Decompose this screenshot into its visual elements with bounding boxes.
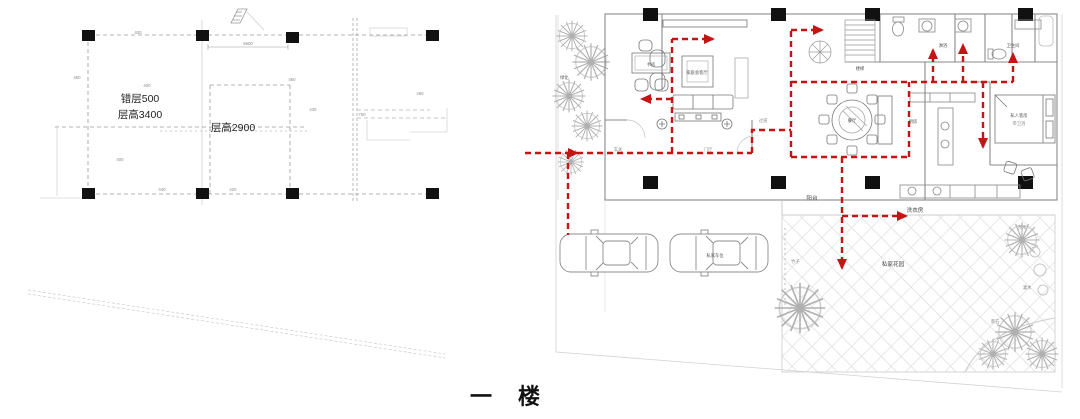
floor-height2-label: 层高2900 (211, 121, 256, 134)
dining-label: 餐厅 (848, 117, 857, 124)
dining-furniture: 餐厅 厨房 (819, 84, 917, 155)
dim-text: 260 (416, 91, 424, 96)
north-arrow-icon (231, 9, 264, 30)
floor-title: 一 楼 (400, 379, 620, 411)
foyer-label: 玄关 (614, 146, 623, 153)
columns (643, 8, 1033, 189)
living-furniture: 家庭会客厅 (650, 20, 748, 129)
floor-height-label: 层高3400 (118, 108, 163, 121)
greenery-label: 绿化 (560, 74, 569, 81)
dim-text: 750 (358, 112, 366, 117)
side-garden: 绿化 (553, 15, 610, 200)
split-level-label: 错层500 (121, 92, 160, 105)
dim-text: 460 (288, 77, 296, 82)
stairs-and-plant: 楼梯 (809, 20, 875, 72)
site-boundary (28, 290, 445, 358)
parking-label: 私家车位 (706, 252, 724, 259)
laundry-label: 洗衣房 (907, 206, 924, 214)
faint-structures (40, 28, 447, 198)
dim-text: 440 (158, 187, 166, 192)
shrub-label: 灌木 (1023, 284, 1032, 291)
furnished-plan: 绿化 (515, 0, 1080, 419)
floor-plan-sheet: 错层500 层高3400 层高2900 400 5600 450 400 460… (0, 0, 1080, 419)
dim-text: 430 (309, 107, 317, 112)
bedroom-furniture: 私人客房 带卫浴 (995, 95, 1055, 181)
shower-label: 淋浴 (939, 42, 948, 49)
corridor-label: 过道 (759, 117, 768, 124)
grid-lines (55, 18, 447, 205)
parking: 私家车位 (560, 230, 768, 276)
hall-label: 门厅 (704, 146, 713, 153)
garden: 私家花园 阳台 洗衣房 竹子 乔木 灌木 景石 (775, 194, 1059, 372)
dim-text: 400 (134, 30, 142, 35)
dim-text: 420 (229, 187, 237, 192)
bathroom-label: 卫生间 (1007, 42, 1020, 49)
dim-text: 450 (73, 75, 81, 80)
hallway-labels: 玄关 门厅 过道 (614, 117, 768, 153)
living-label: 家庭会客厅 (686, 69, 708, 76)
stairs-label: 楼梯 (856, 65, 865, 72)
balcony-label: 阳台 (806, 194, 818, 202)
bathroom-fixtures: 淋浴 卫生间 (893, 16, 1054, 59)
structural-plan: 错层500 层高3400 层高2900 400 5600 450 400 460… (0, 0, 515, 419)
tree-label: 乔木 (1018, 224, 1027, 231)
study-furniture: 书房 (632, 40, 670, 91)
guest-room-sub-label: 带卫浴 (1013, 120, 1027, 127)
dim-text: 400 (116, 157, 124, 162)
level-labels: 错层500 层高3400 层高2900 (118, 92, 256, 134)
kitchen-fixtures (900, 93, 1020, 198)
dim-text: 5600 (243, 41, 253, 46)
dim-text: 400 (143, 83, 151, 88)
bamboo-label: 竹子 (791, 258, 800, 265)
guest-room-label: 私人客房 (1010, 112, 1027, 119)
garden-label: 私家花园 (882, 260, 905, 268)
